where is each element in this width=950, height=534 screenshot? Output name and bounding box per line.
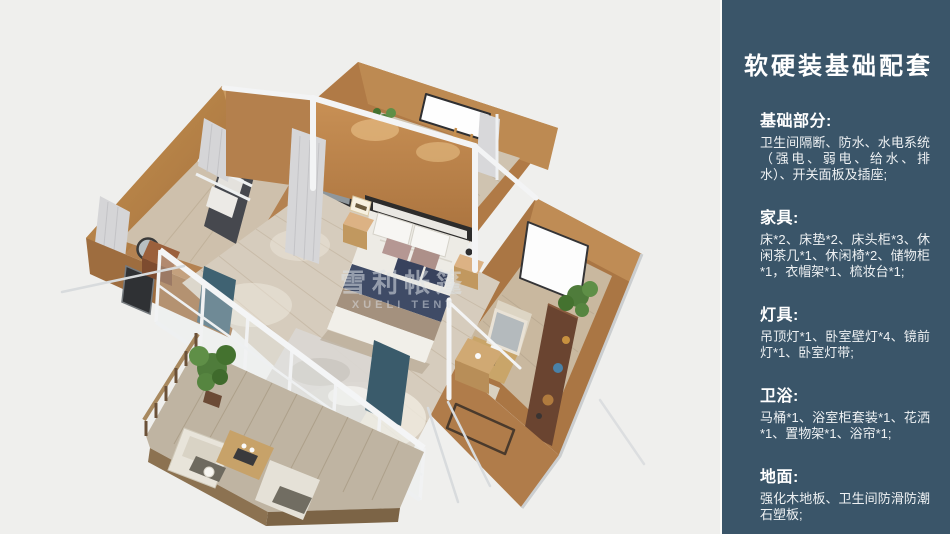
section-heading: 基础部分: [760,107,930,131]
section-heading: 卫浴: [760,382,930,406]
section-body: 卫生间隔断、防水、水电系统（强电、弱电、给水、排水）、开关面板及插座; [760,135,930,183]
info-panel: 软硬装基础配套 基础部分: 卫生间隔断、防水、水电系统（强电、弱电、给水、排水）… [720,0,950,534]
section-bathroom: 卫浴: 马桶*1、浴室柜套装*1、花洒*1、置物架*1、浴帘*1; [760,382,930,442]
sphere-lamp [204,467,214,477]
slide: 雪利帐篷 XUELI TENT 软硬装基础配套 基础部分: 卫生间隔断、防水、水… [0,0,950,534]
curtain [285,128,326,264]
section-body: 马桶*1、浴室柜套装*1、花洒*1、置物架*1、浴帘*1; [760,410,930,442]
section-heading: 地面: [760,463,930,487]
section-flooring: 地面: 强化木地板、卫生间防滑防潮石塑板; [760,463,930,523]
section-lighting: 灯具: 吊顶灯*1、卧室壁灯*4、镜前灯*1、卧室灯带; [760,301,930,361]
floorplan-render: 雪利帐篷 XUELI TENT [0,0,718,534]
section-body: 强化木地板、卫生间防滑防潮石塑板; [760,491,930,523]
section-body: 吊顶灯*1、卧室壁灯*4、镜前灯*1、卧室灯带; [760,329,930,361]
watermark-cn: 雪利帐篷 [340,268,468,298]
section-furniture: 家具: 床*2、床垫*2、床头柜*3、休闲茶几*1、休闲椅*2、储物柜*1，衣帽… [760,204,930,280]
section-body: 床*2、床垫*2、床头柜*3、休闲茶几*1、休闲椅*2、储物柜*1，衣帽架*1、… [760,232,930,280]
panel-title: 软硬装基础配套 [744,46,930,81]
section-heading: 灯具: [760,301,930,325]
lamp [466,249,473,256]
section-basics: 基础部分: 卫生间隔断、防水、水电系统（强电、弱电、给水、排水）、开关面板及插座… [760,107,930,183]
vase [553,363,563,373]
watermark-en: XUELI TENT [352,299,456,311]
floorplan-render-area: 雪利帐篷 XUELI TENT [0,0,720,534]
wall-lamp-glow [416,142,460,162]
section-heading: 家具: [760,204,930,228]
watermark: 雪利帐篷 XUELI TENT [340,268,468,311]
